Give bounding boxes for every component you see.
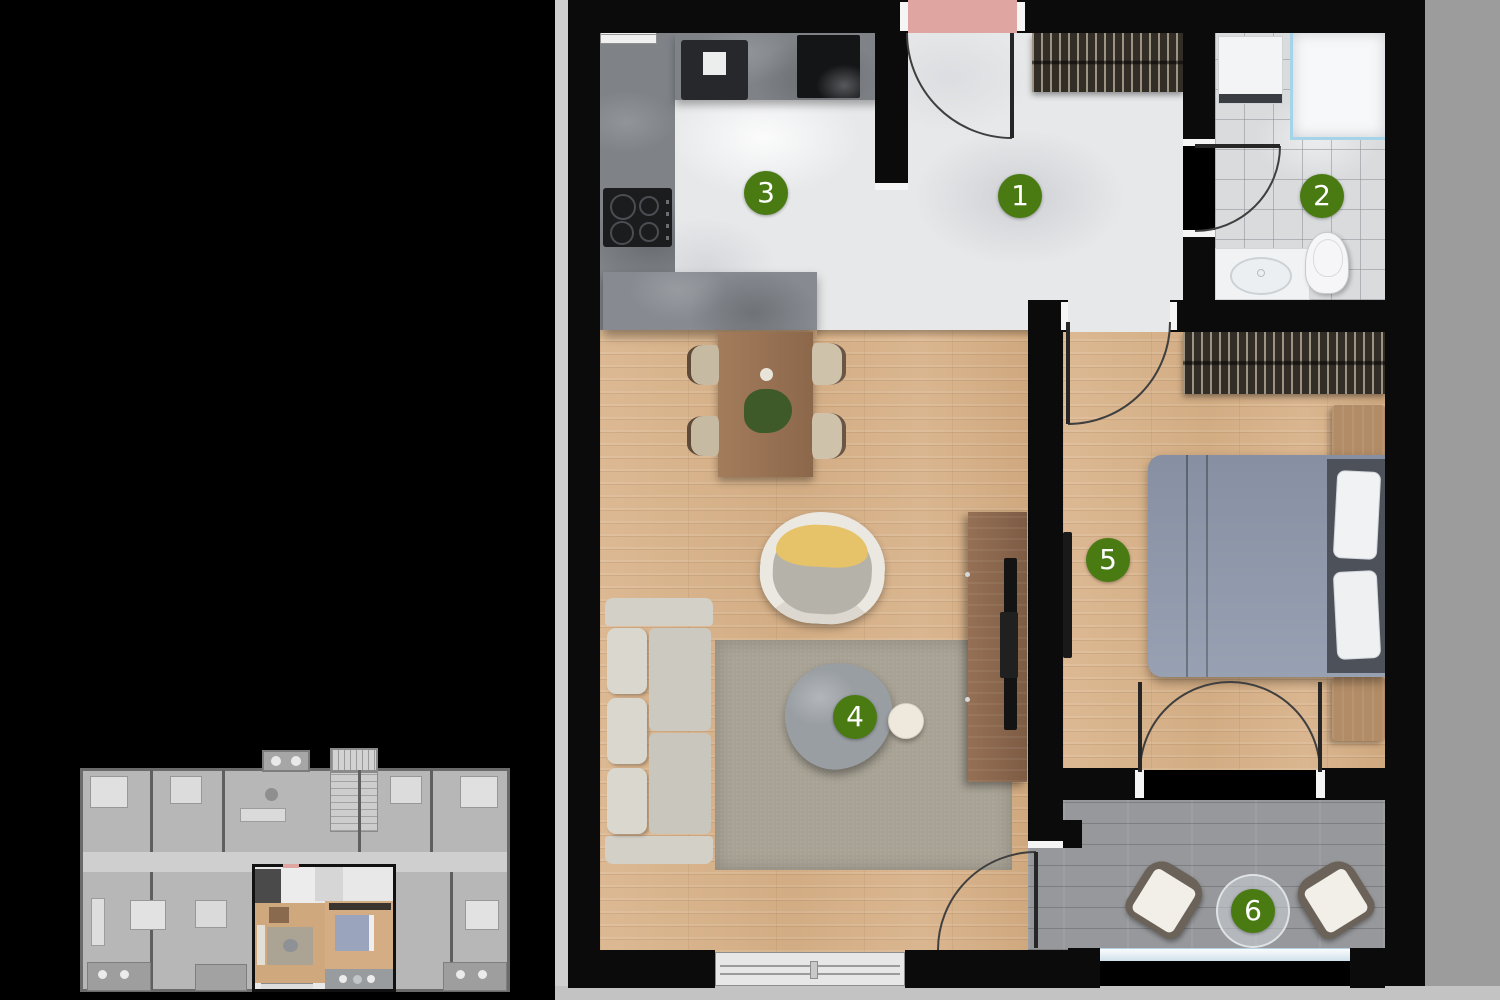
mini-unit-coffee-table: [283, 939, 298, 952]
mini-unit-kitchen: [255, 869, 281, 903]
mini-stairwell: [330, 748, 378, 772]
room-marker-balcony: 6: [1231, 889, 1275, 933]
mini-chair-dot: [367, 975, 375, 983]
mini-unit-dining-table: [269, 907, 289, 923]
mini-chair-dot: [98, 970, 107, 979]
mini-unit-balcony: [325, 969, 393, 989]
mini-chair-dot: [478, 970, 487, 979]
mini-wall: [150, 770, 153, 852]
mini-sofa: [91, 898, 105, 946]
mini-sofa: [240, 808, 286, 822]
mini-bed: [170, 776, 202, 804]
room-marker-hall: 1: [998, 174, 1042, 218]
mini-unit-wardrobe: [329, 903, 391, 910]
room-marker-bedroom: 5: [1086, 538, 1130, 582]
mini-unit-bed: [335, 915, 374, 951]
mini-wall: [222, 770, 225, 852]
mini-wall: [358, 770, 361, 852]
mini-unit-entrance-mat: [283, 864, 299, 868]
mini-unit-sofa: [257, 925, 265, 965]
mini-top-balcony: [262, 750, 310, 772]
mini-bed: [390, 776, 422, 804]
mini-unit-hall: [281, 867, 315, 903]
mini-chair-dot: [271, 756, 281, 766]
mini-chair-dot: [291, 756, 301, 766]
mini-balcony: [443, 962, 507, 991]
floor-plan-image: 1 2 3 4 5 6: [0, 0, 1500, 1000]
door-swing-arcs: [555, 0, 1425, 990]
mini-table-dot: [265, 788, 278, 801]
mini-wall: [430, 770, 433, 852]
mini-stairwell-core: [330, 772, 378, 832]
mini-chair-dot: [456, 970, 465, 979]
mini-bed: [460, 776, 498, 808]
mini-unit-window: [261, 983, 313, 989]
mini-bed: [130, 900, 166, 930]
mini-highlighted-unit: [252, 864, 396, 992]
room-marker-bathroom: 2: [1300, 174, 1344, 218]
main-floor-plan: 1 2 3 4 5 6: [555, 0, 1425, 1000]
mini-bed: [195, 900, 227, 928]
mini-chair-dot: [339, 975, 347, 983]
mini-bed: [465, 900, 499, 930]
building-overview-plan: [75, 748, 512, 998]
mini-balcony: [195, 964, 247, 991]
mini-table-dot: [353, 975, 362, 984]
mini-unit-bath: [315, 867, 343, 901]
mini-balcony: [87, 962, 151, 991]
room-marker-kitchen: 3: [744, 171, 788, 215]
plan-shadow-right: [1425, 0, 1500, 1000]
mini-bed: [90, 776, 128, 808]
room-marker-living: 4: [833, 695, 877, 739]
mini-chair-dot: [120, 970, 129, 979]
